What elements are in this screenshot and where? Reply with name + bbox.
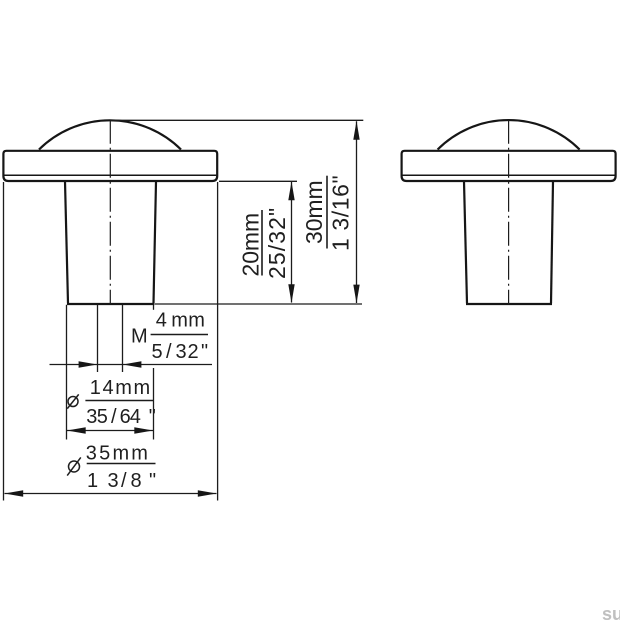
svg-text:4mm: 4mm [156, 310, 205, 332]
svg-text:3/8": 3/8" [108, 470, 157, 492]
svg-text:su: su [602, 604, 620, 620]
svg-text:M: M [131, 325, 148, 347]
svg-text:1 3/16": 1 3/16" [328, 175, 354, 251]
svg-text:1: 1 [87, 470, 98, 492]
svg-text:35mm: 35mm [86, 443, 150, 465]
svg-text:14mm: 14mm [90, 377, 152, 399]
svg-text:20mm: 20mm [238, 213, 264, 277]
svg-text:30mm: 30mm [301, 180, 327, 244]
svg-text:25/32": 25/32" [264, 207, 290, 279]
